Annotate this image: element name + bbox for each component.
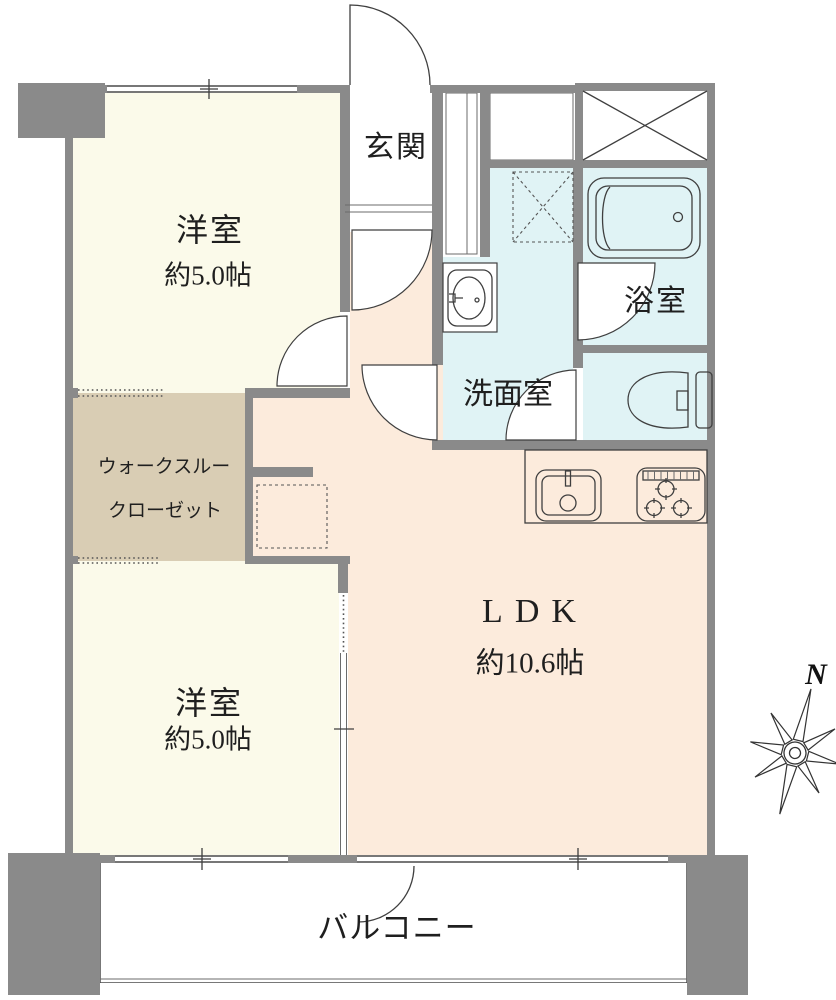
bathroom-label: 浴室 [624,287,688,317]
vanity-sink-icon [443,263,497,332]
entrance-label: 玄関 [364,133,428,163]
closet-label-line1: ウォークスルー [98,458,230,477]
floor-plan: 洋室 約5.0帖 玄関 浴室 洗面室 ウォークスルー クローゼット LDK 約1… [0,0,836,1000]
pipe-space [583,91,707,160]
closet-label-line2: クローゼット [108,502,222,521]
bedroom-top-size: 約5.0帖 [164,263,252,290]
balcony-pillar-left [8,853,100,995]
bedroom-bottom-label: 洋室 [175,687,243,719]
ldk-size: 約10.6帖 [476,650,585,679]
balcony-label: バルコニー [317,913,476,944]
bedroom-top-label: 洋室 [176,214,244,246]
washroom-label: 洗面室 [463,380,553,410]
bedroom-bottom-size: 約5.0帖 [164,727,252,754]
storage-nook-floor [490,93,573,160]
balcony-edge-strip [100,983,687,995]
ldk-west-floor [345,228,443,860]
balcony-pillar-right [687,855,748,995]
entrance-door-arc [350,5,430,85]
compass-icon [735,678,836,825]
compass-north-label: N [805,658,827,692]
ldk-label: LDK [482,595,588,629]
shoe-cabinet [443,90,480,257]
